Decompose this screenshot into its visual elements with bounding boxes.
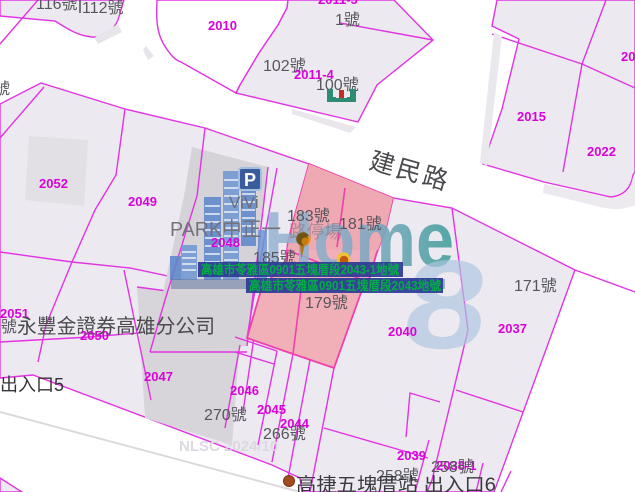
svg-text:號: 號 (0, 80, 10, 98)
svg-text:2050: 2050 (80, 328, 109, 343)
svg-text:4號: 4號 (0, 318, 17, 336)
svg-text:2015: 2015 (517, 109, 546, 124)
svg-text:2040: 2040 (388, 324, 417, 339)
svg-text:2045: 2045 (257, 402, 286, 417)
svg-text:高雄市苓雅區0901五塊厝段2043地號: 高雄市苓雅區0901五塊厝段2043地號 (249, 278, 441, 293)
svg-text:2022: 2022 (587, 144, 616, 159)
svg-text:P: P (244, 170, 256, 190)
svg-text:永豐金證券高雄分公司: 永豐金證券高雄分公司 (17, 315, 215, 338)
svg-text:2010: 2010 (208, 18, 237, 33)
svg-text:2046: 2046 (230, 383, 259, 398)
svg-text:181號: 181號 (339, 215, 382, 233)
svg-text:高雄市苓雅區0901五塊厝段2043-1地號: 高雄市苓雅區0901五塊厝段2043-1地號 (201, 262, 399, 277)
svg-text:1號: 1號 (335, 11, 360, 29)
svg-text:高捷五塊厝站 出入口6: 高捷五塊厝站 出入口6 (296, 474, 496, 492)
svg-text:2011-5: 2011-5 (318, 0, 358, 7)
svg-text:出入口5: 出入口5 (0, 375, 64, 395)
svg-text:ViVi: ViVi (229, 193, 259, 212)
svg-text:2052: 2052 (39, 176, 68, 191)
svg-text:2048: 2048 (211, 235, 240, 250)
svg-text:266號: 266號 (263, 425, 306, 443)
svg-text:112號: 112號 (82, 0, 124, 17)
svg-text:171號: 171號 (514, 277, 557, 295)
svg-text:2016: 2016 (621, 49, 635, 64)
svg-text:183號: 183號 (287, 207, 330, 225)
svg-text:8: 8 (397, 235, 494, 375)
svg-text:179號: 179號 (305, 294, 348, 312)
svg-text:2049: 2049 (128, 194, 157, 209)
svg-text:2039: 2039 (397, 448, 426, 463)
svg-text:270號: 270號 (204, 406, 247, 424)
svg-text:116號: 116號 (36, 0, 78, 13)
svg-text:258號: 258號 (431, 458, 474, 476)
svg-text:2047: 2047 (144, 369, 173, 384)
svg-text:2037: 2037 (498, 321, 527, 336)
